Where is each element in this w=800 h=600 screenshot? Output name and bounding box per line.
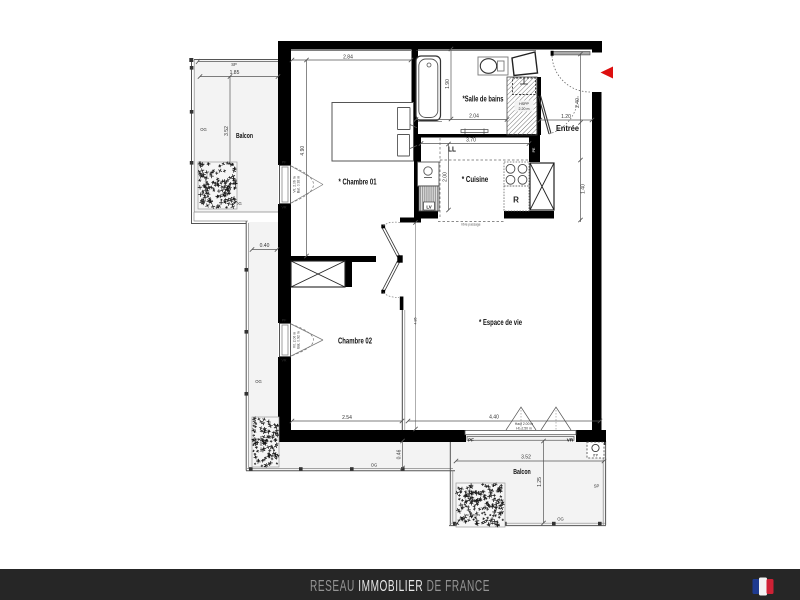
svg-text:* Espace de vie: * Espace de vie [479,317,522,327]
svg-text:0.46: 0.46 [397,449,403,459]
svg-text:*Salle de bains: *Salle de bains [463,94,504,104]
svg-text:1.90: 1.90 [445,79,451,89]
svg-text:2.84: 2.84 [343,54,353,60]
svg-text:bac plantes: bac plantes [259,435,263,452]
svg-text:1.25: 1.25 [537,477,543,487]
svg-text:Bat. 0.92 m: Bat. 0.92 m [297,331,301,349]
svg-text:libre passage: libre passage [462,223,481,227]
svg-text:LL: LL [448,147,457,154]
svg-text:SP: SP [231,62,237,67]
svg-text:2.04: 2.04 [469,114,479,120]
svg-text:4.85: 4.85 [414,318,418,325]
svg-text:0.40: 0.40 [260,243,270,249]
svg-text:Balcon: Balcon [513,469,531,476]
svg-text:bac plantes: bac plantes [464,513,481,517]
svg-text:3.52: 3.52 [224,126,230,136]
svg-text:2.54: 2.54 [342,415,352,421]
svg-text:1.20: 1.20 [561,114,571,120]
svg-text:4.40: 4.40 [489,415,499,421]
svg-text:PE: PE [532,147,536,152]
svg-text:PF: PF [468,438,474,443]
svg-text:VR: VR [567,438,574,443]
svg-text:Balcon: Balcon [236,133,253,140]
svg-text:Haut 2.00 m: Haut 2.00 m [515,422,534,426]
svg-text:PF: PF [282,319,287,323]
svg-text:VR: VR [282,206,287,210]
svg-text:OG: OG [200,127,207,132]
svg-text:2.20 m: 2.20 m [519,107,530,111]
svg-text:OG: OG [371,463,378,468]
svg-text:SP: SP [594,484,600,489]
svg-text:Chambre 02: Chambre 02 [338,337,372,346]
svg-text:Entrée: Entrée [556,124,580,133]
svg-text:Bat. 0.92 m: Bat. 0.92 m [297,176,301,194]
svg-text:R: R [513,196,519,205]
svg-text:1.40: 1.40 [581,184,587,194]
svg-text:bac plantes: bac plantes [204,177,208,194]
svg-text:PF: PF [282,161,287,165]
svg-text:2.00: 2.00 [443,172,449,182]
svg-text:* Chambre 01: * Chambre 01 [339,177,377,187]
svg-text:4.90: 4.90 [300,146,306,156]
svg-text:2.40: 2.40 [575,98,581,108]
svg-text:3.52: 3.52 [521,455,531,461]
svg-text:OG: OG [557,517,564,522]
svg-text:VR: VR [282,359,287,363]
svg-text:LV: LV [426,204,431,209]
svg-text:Ht. 2.50 m: Ht. 2.50 m [516,427,532,431]
svg-text:* Cuisine: * Cuisine [462,174,489,184]
svg-text:3.70: 3.70 [466,138,476,144]
svg-text:HSPP: HSPP [519,102,529,106]
svg-text:ITP: ITP [593,454,599,458]
svg-text:OG: OG [255,379,262,384]
